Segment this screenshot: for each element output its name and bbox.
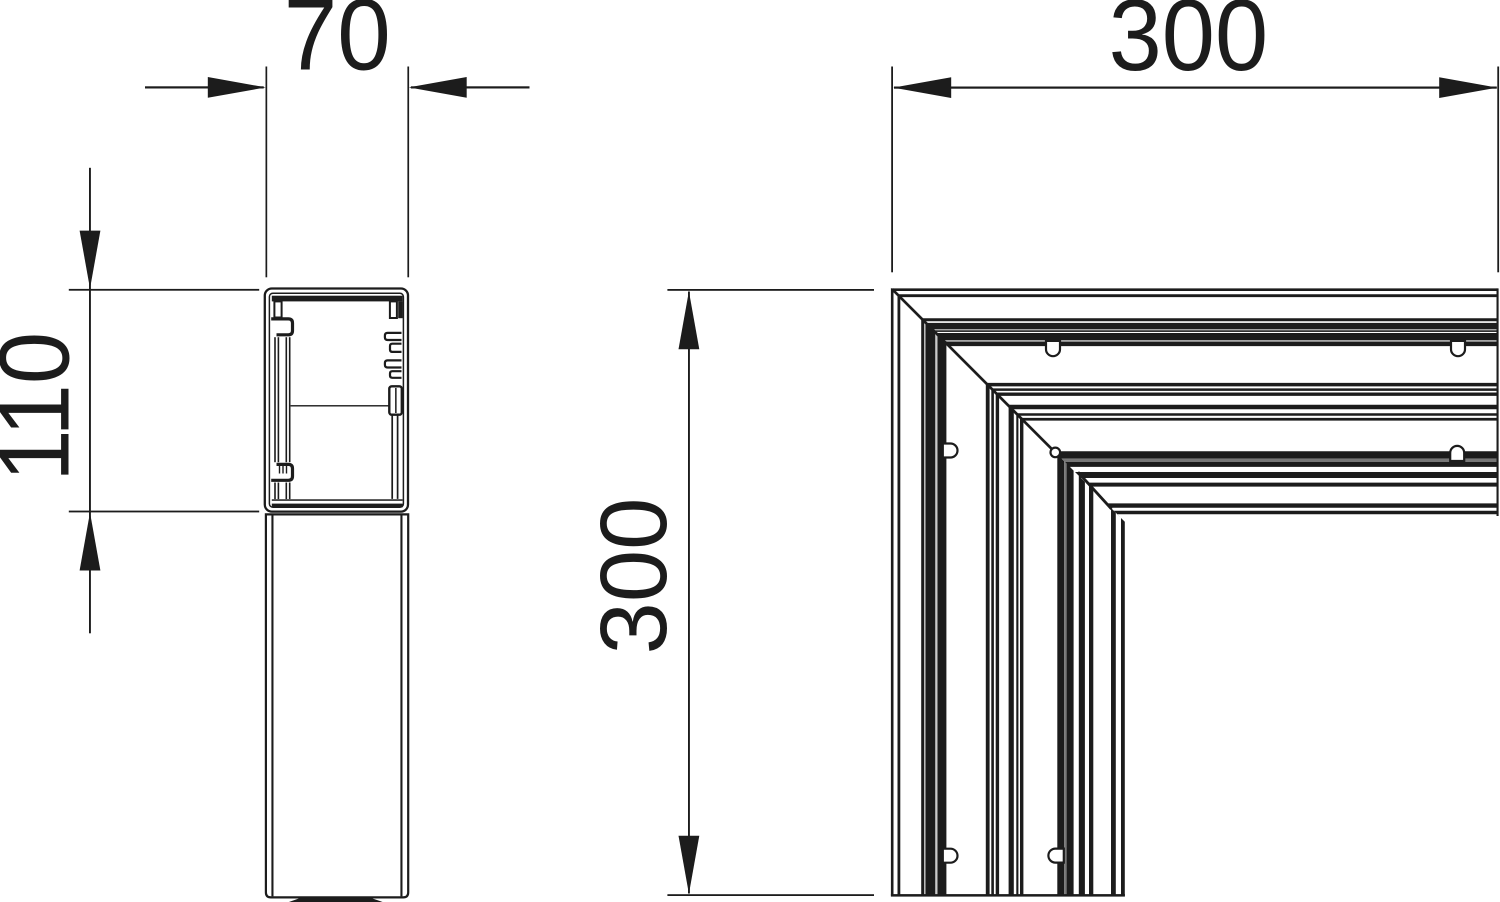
svg-text:300: 300 bbox=[581, 498, 687, 655]
svg-text:300: 300 bbox=[1109, 0, 1269, 92]
svg-text:110: 110 bbox=[0, 332, 89, 482]
svg-text:70: 70 bbox=[284, 0, 391, 92]
